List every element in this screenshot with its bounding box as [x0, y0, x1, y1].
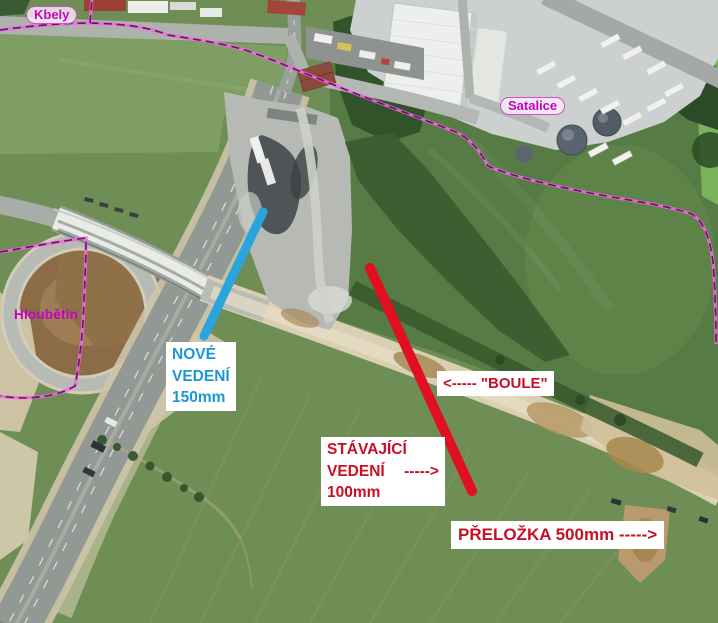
new-pipeline-note-line3: 150mm: [172, 387, 230, 409]
place-label-kbely: Kbely: [26, 6, 77, 24]
boule-note: <----- "BOULE": [437, 371, 554, 396]
place-label-satalice: Satalice: [500, 97, 565, 115]
right-arrow: ----->: [404, 461, 439, 483]
boundary-line-pink: [0, 23, 716, 344]
boundary-line-dash: [0, 23, 716, 344]
existing-pipeline-note-line3: 100mm: [327, 482, 439, 504]
existing-pipeline-note-line2: VEDENÍ ----->: [327, 461, 439, 483]
prelozka-note: PŘELOŽKA 500mm ----->: [451, 521, 664, 549]
new-pipeline-note-line1: NOVÉ: [172, 344, 230, 366]
existing-pipeline-note-line1: STÁVAJÍCÍ: [327, 439, 439, 461]
place-label-hloubetin: Hloubětin: [14, 307, 78, 322]
new-pipeline-note-line2: VEDENÍ: [172, 366, 230, 388]
new-pipeline-note: NOVÉ VEDENÍ 150mm: [166, 342, 236, 411]
cadastral-boundary: [0, 0, 716, 398]
new-pipeline-line: [204, 212, 263, 336]
existing-pipeline-note: STÁVAJÍCÍ VEDENÍ -----> 100mm: [321, 437, 445, 506]
annotated-aerial-map: Kbely Satalice Hloubětin NOVÉ VEDENÍ 150…: [0, 0, 718, 623]
